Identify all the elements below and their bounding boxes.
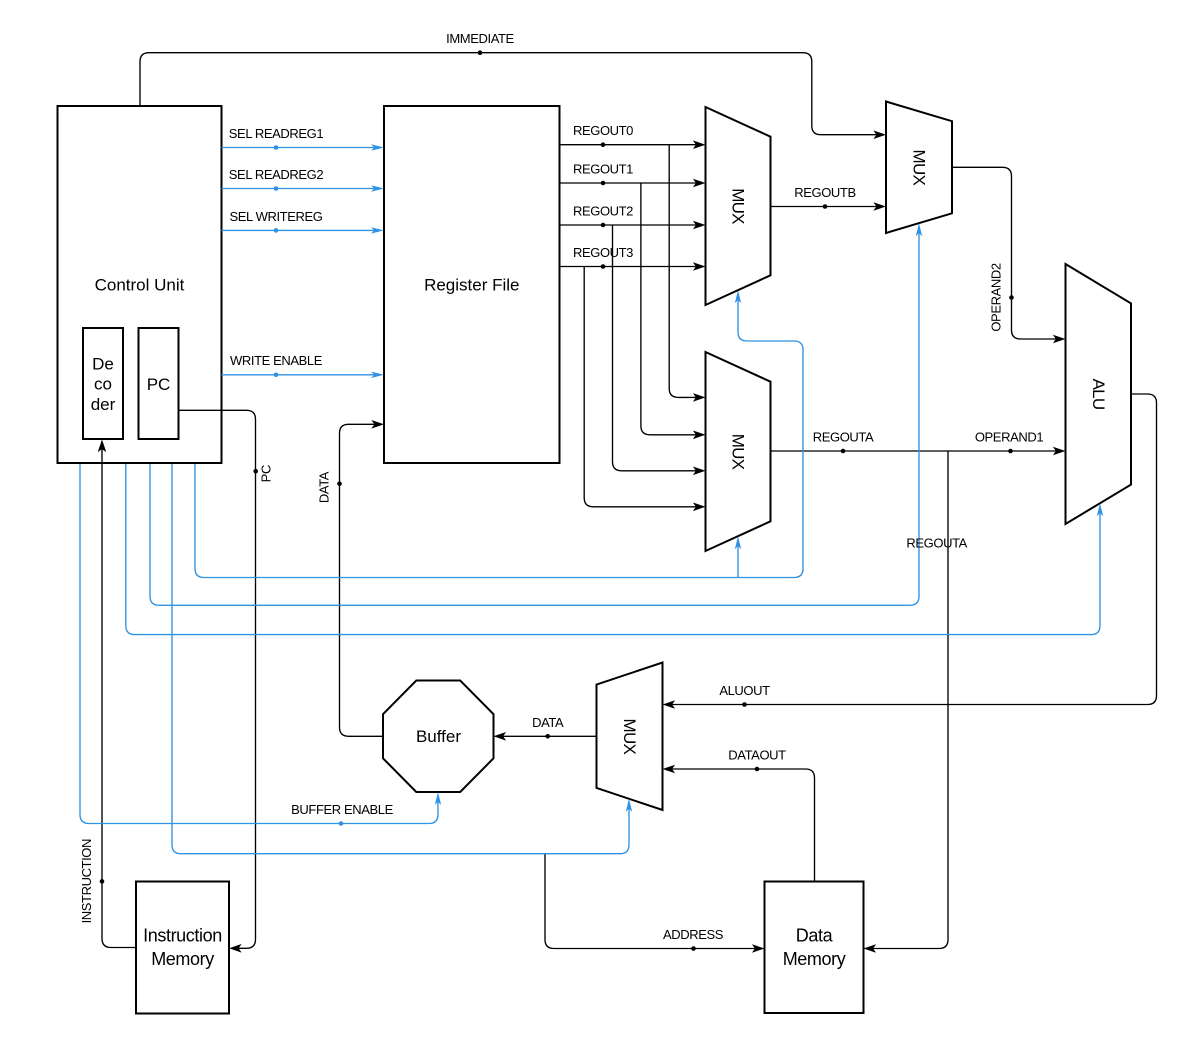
- svg-text:MUX: MUX: [620, 719, 639, 755]
- svg-text:OPERAND2: OPERAND2: [989, 263, 1004, 331]
- svg-text:De: De: [92, 354, 114, 373]
- svg-text:MUX: MUX: [729, 434, 748, 470]
- svg-text:REGOUT1: REGOUT1: [573, 162, 633, 177]
- svg-text:OPERAND1: OPERAND1: [975, 430, 1043, 445]
- svg-text:MUX: MUX: [729, 188, 748, 224]
- svg-text:REGOUTA: REGOUTA: [906, 536, 967, 551]
- svg-text:PC: PC: [147, 375, 171, 394]
- svg-text:SEL READREG1: SEL READREG1: [229, 126, 324, 141]
- svg-text:ALU: ALU: [1089, 379, 1108, 410]
- svg-text:REGOUTB: REGOUTB: [794, 185, 855, 200]
- svg-text:Memory: Memory: [151, 949, 214, 969]
- svg-text:DATAOUT: DATAOUT: [728, 748, 786, 763]
- svg-text:BUFFER ENABLE: BUFFER ENABLE: [291, 802, 393, 817]
- svg-text:IMMEDIATE: IMMEDIATE: [446, 31, 514, 46]
- svg-text:ALUOUT: ALUOUT: [719, 683, 770, 698]
- svg-text:Memory: Memory: [783, 949, 846, 969]
- svg-text:DATA: DATA: [532, 715, 564, 730]
- svg-text:REGOUT2: REGOUT2: [573, 204, 633, 219]
- svg-text:SEL WRITEREG: SEL WRITEREG: [230, 209, 323, 224]
- svg-text:SEL READREG2: SEL READREG2: [229, 167, 324, 182]
- svg-text:co: co: [94, 375, 112, 394]
- svg-text:INSTRUCTION: INSTRUCTION: [79, 839, 94, 923]
- svg-text:Register File: Register File: [424, 276, 519, 295]
- svg-text:Instruction: Instruction: [143, 925, 222, 945]
- svg-text:Data: Data: [796, 925, 834, 945]
- svg-text:der: der: [91, 395, 116, 414]
- svg-text:WRITE ENABLE: WRITE ENABLE: [230, 353, 323, 368]
- svg-text:PC: PC: [259, 465, 274, 482]
- svg-text:REGOUTA: REGOUTA: [813, 430, 874, 445]
- svg-text:DATA: DATA: [317, 471, 332, 503]
- svg-text:REGOUT0: REGOUT0: [573, 123, 633, 138]
- svg-text:Control Unit: Control Unit: [95, 276, 185, 295]
- svg-text:REGOUT3: REGOUT3: [573, 245, 633, 260]
- svg-text:ADDRESS: ADDRESS: [663, 927, 724, 942]
- svg-text:MUX: MUX: [910, 150, 929, 186]
- svg-text:Buffer: Buffer: [416, 727, 461, 746]
